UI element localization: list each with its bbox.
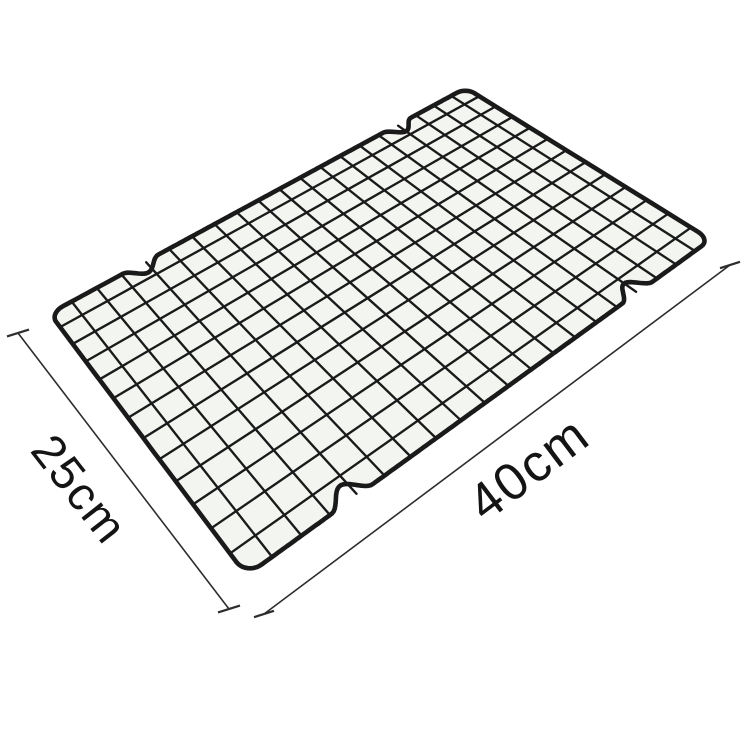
rack-surface <box>55 91 705 569</box>
product-photo-canvas: 25cm 40cm <box>0 0 750 750</box>
cooling-rack-illustration <box>0 0 750 750</box>
